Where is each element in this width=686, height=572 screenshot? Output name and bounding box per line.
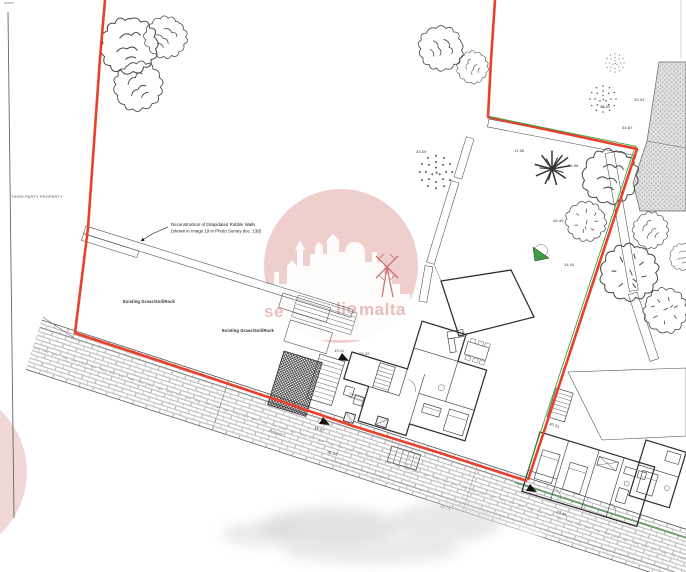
- rubble-wall-annotation: Reconstruction of Dilapidated Rubble Wal…: [141, 222, 262, 241]
- spot-level: 19.22: [359, 351, 370, 356]
- tree-icon: [136, 8, 195, 67]
- annotation-text: Reconstruction of Dilapidated Rubble Wal…: [171, 222, 256, 227]
- tree-icon: [670, 244, 686, 271]
- tree-icon: [576, 143, 644, 210]
- spot-level: 19.11: [334, 348, 345, 353]
- leader-arrow: [141, 227, 168, 241]
- staircase: [373, 363, 396, 393]
- spot-level: 33.59: [416, 149, 427, 154]
- level-marker: [338, 353, 349, 361]
- tree-icon: [625, 205, 676, 256]
- site-plan-canvas: se lio malta Footpath: [0, 0, 686, 572]
- roof-hatch-right: [568, 368, 686, 440]
- bed: [443, 409, 469, 436]
- site-plan-drawing: se lio malta Footpath: [0, 0, 686, 572]
- watermark-text-fragment: se: [264, 302, 284, 321]
- tree-icon: [419, 155, 454, 190]
- spot-level: 40.31: [549, 421, 561, 429]
- tree-icon: [638, 282, 686, 339]
- bed: [562, 462, 587, 494]
- well-label: Covered Well (Soil/Rubble): [348, 391, 367, 403]
- tree-icon: [605, 53, 624, 72]
- grass-label: Existing Grass/Soil/Rock: [222, 328, 275, 333]
- roof-hatch-main: [441, 270, 534, 336]
- tree-icon: [100, 18, 158, 74]
- tree-icon: [105, 53, 172, 119]
- dining-table: [464, 341, 489, 360]
- adjacent-building-grey: [633, 62, 686, 211]
- grass-label: Existing Grass/Soil/Rock: [123, 299, 176, 304]
- spot-level: 34.04: [564, 262, 575, 267]
- spot-level: 33.02: [600, 104, 611, 109]
- tree-icon: [412, 20, 469, 77]
- boundary-green-lines: [489, 117, 637, 480]
- watermark-text-fragment: malta: [359, 300, 406, 319]
- rubble-wall-north: [487, 119, 636, 155]
- third-party-property-label: THIRD PARTY PROPERTY: [11, 195, 63, 199]
- sofa: [422, 403, 442, 417]
- annotation-text: (shown in Image 19 in Photo Survey doc. …: [171, 229, 262, 234]
- tree-icon: [451, 46, 494, 89]
- door-arc: [405, 380, 417, 392]
- tree-icon: [535, 151, 571, 186]
- staircase: [547, 388, 573, 422]
- spot-level: 34.87: [622, 125, 633, 130]
- far-right-rooms-plan: [629, 440, 686, 508]
- blurred-region: [222, 502, 540, 572]
- spot-level: 33.58: [568, 163, 579, 168]
- watermark-text-fragment: lio: [336, 299, 357, 318]
- spot-level: 11.56: [514, 148, 525, 153]
- spot-level: 33.93: [634, 97, 645, 102]
- spot-level: 46.40: [553, 218, 564, 223]
